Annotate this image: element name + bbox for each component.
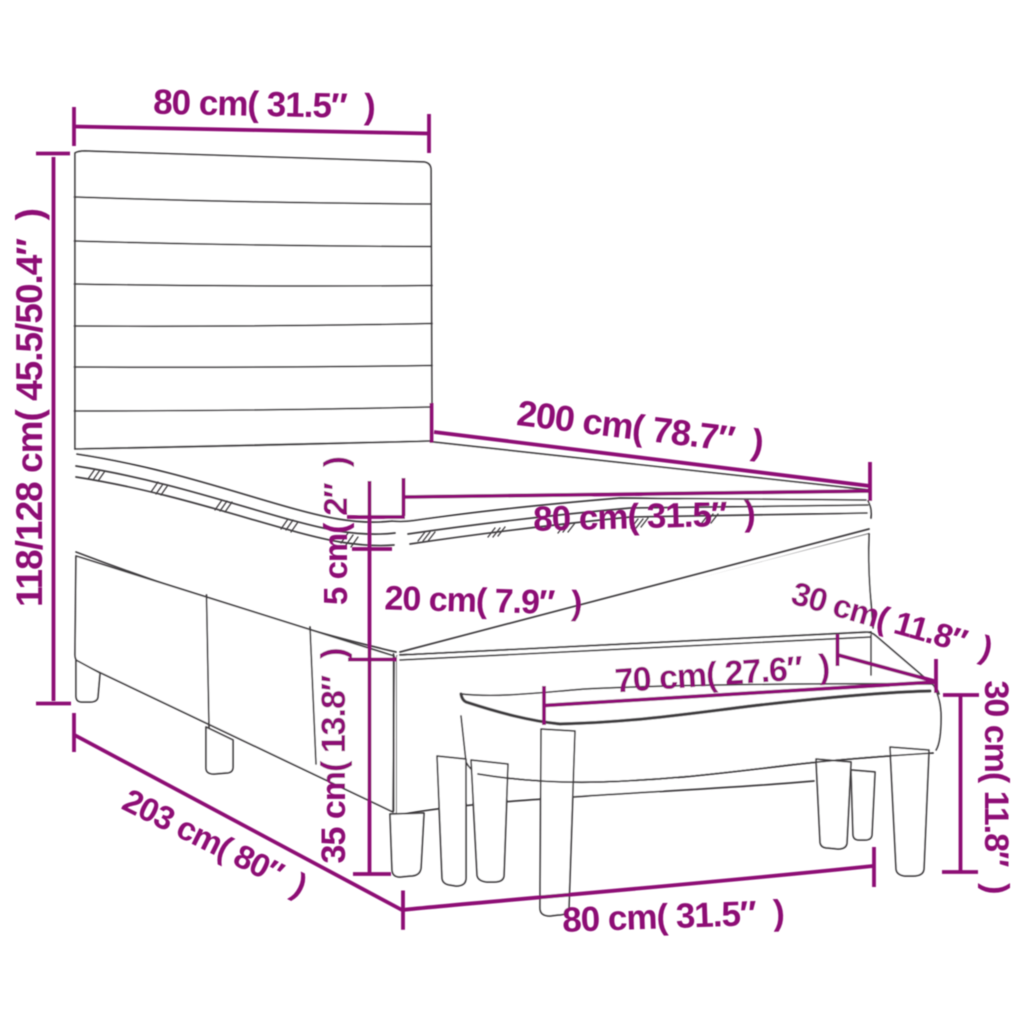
svg-text:118/128 cm( 45.5/50.4″ ): 118/128 cm( 45.5/50.4″ ) [9, 209, 50, 607]
svg-text:20 cm( 7.9″ ): 20 cm( 7.9″ ) [384, 579, 582, 622]
svg-text:30 cm( 11.8″ ): 30 cm( 11.8″ ) [977, 681, 1015, 894]
svg-text:80 cm( 31.5″ ): 80 cm( 31.5″ ) [562, 893, 785, 940]
svg-text:5 cm( 2″ ): 5 cm( 2″ ) [317, 457, 354, 605]
svg-text:35 cm( 13.8″ ): 35 cm( 13.8″ ) [315, 649, 353, 864]
svg-text:80 cm( 31.5″ ): 80 cm( 31.5″ ) [153, 83, 375, 127]
svg-text:80 cm( 31.5″ ): 80 cm( 31.5″ ) [533, 494, 756, 539]
